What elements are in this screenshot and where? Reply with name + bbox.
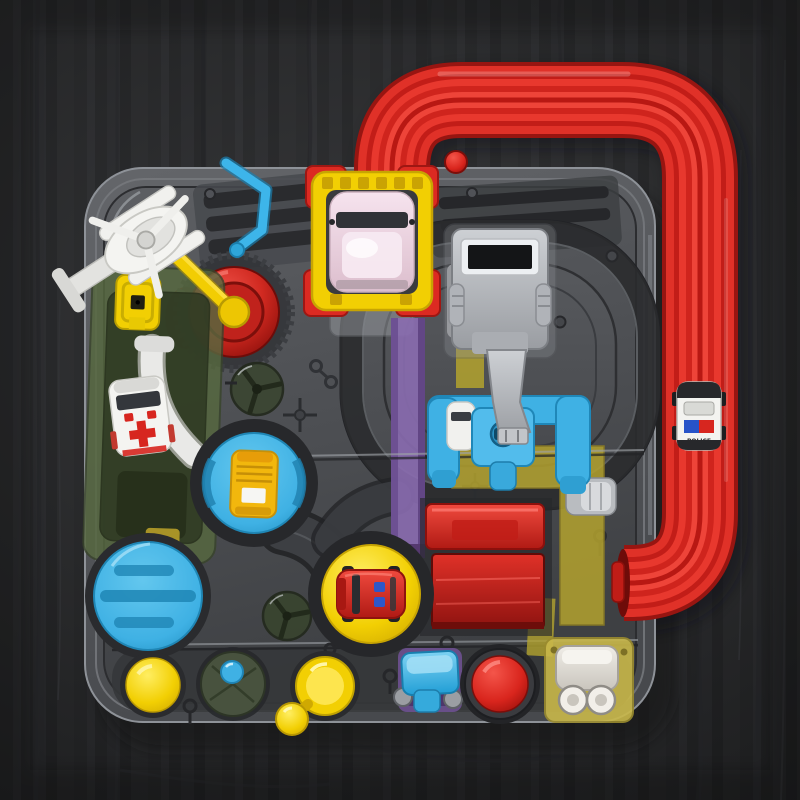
yellow-bus <box>230 450 278 518</box>
car-window <box>374 582 385 592</box>
product-photo-stage: POLICE <box>0 0 800 800</box>
red-arcade-button <box>460 644 540 724</box>
purple-track <box>391 318 425 558</box>
fan-window-bottom <box>263 592 311 640</box>
red-dome-cap <box>445 151 467 173</box>
white-car-in-crane <box>447 402 475 450</box>
pink-car <box>329 192 415 292</box>
yellow-turntable <box>308 531 434 657</box>
toy-playset-illustration: POLICE <box>0 0 800 800</box>
red-ramp-panels <box>420 498 552 636</box>
police-stripe-blue <box>684 420 699 433</box>
blue-turntable <box>85 533 211 659</box>
police-car: POLICE <box>672 382 726 450</box>
police-stripe-red <box>699 420 714 433</box>
roller-winch <box>545 638 633 722</box>
excavator-screen <box>468 245 532 269</box>
bus-turntable <box>190 419 318 547</box>
yellow-dome-button <box>120 652 186 718</box>
red-car <box>337 566 405 622</box>
blue-rocker-button <box>394 648 462 712</box>
green-gear-disc <box>196 647 270 721</box>
